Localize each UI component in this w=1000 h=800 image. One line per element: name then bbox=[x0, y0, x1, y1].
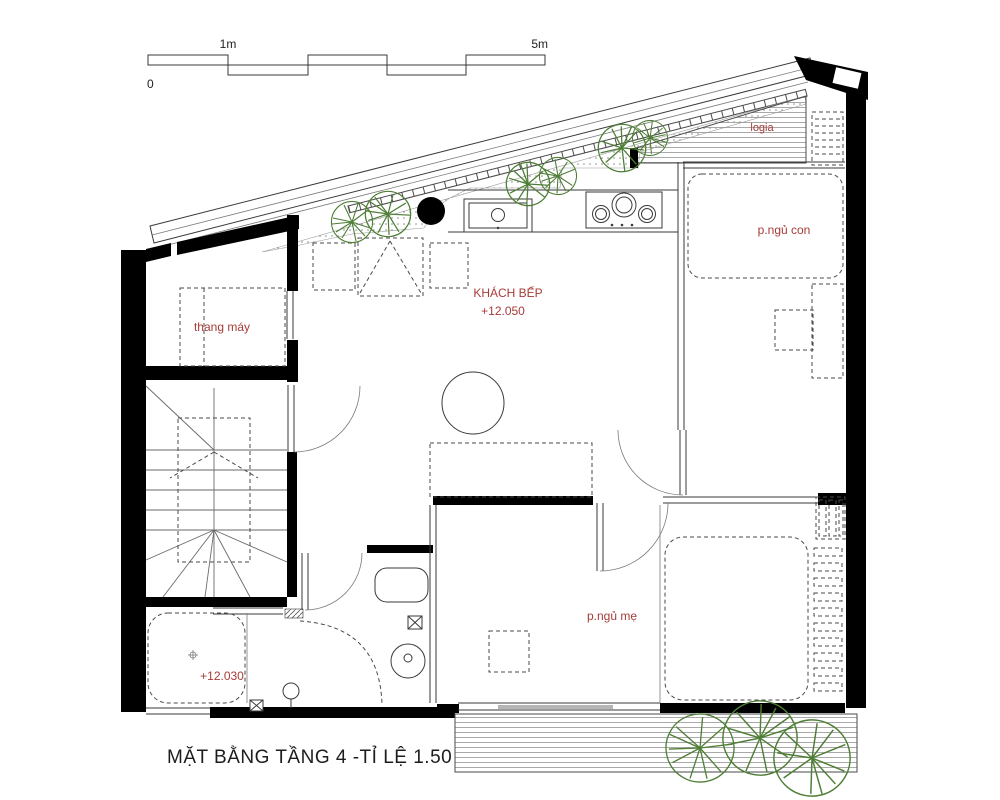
floor-drain-bath bbox=[408, 616, 422, 629]
child-bedroom bbox=[688, 174, 843, 378]
door-bathroom bbox=[302, 553, 362, 610]
shower-room bbox=[148, 613, 247, 703]
floor-plan-canvas: 0 1m 5m bbox=[0, 0, 1000, 800]
living-kitchen-level: +12.050 bbox=[481, 304, 525, 318]
child-bedroom-label: p.ngủ con bbox=[758, 223, 811, 237]
structural-column bbox=[417, 197, 445, 225]
condenser-unit bbox=[812, 112, 843, 165]
floor-plan-drawing: 0 1m 5m bbox=[0, 0, 1000, 800]
shower-drain-symbol bbox=[188, 650, 198, 660]
round-table bbox=[442, 372, 504, 434]
shower-tray bbox=[148, 613, 245, 703]
elevator-label: thang máy bbox=[194, 320, 250, 334]
scale-bar: 0 1m 5m bbox=[147, 37, 548, 91]
chair bbox=[775, 310, 813, 350]
seat-cushion-left bbox=[313, 243, 355, 290]
floor-drain-shower bbox=[250, 700, 263, 711]
bathroom-level: +12.030 bbox=[200, 669, 244, 683]
sofa bbox=[430, 443, 592, 497]
scale-1m-label: 1m bbox=[220, 37, 237, 51]
seat-cushion-right bbox=[430, 243, 468, 288]
living-furniture bbox=[313, 238, 592, 497]
logia-label: logia bbox=[750, 122, 774, 134]
bathroom bbox=[250, 568, 428, 711]
desk bbox=[812, 284, 843, 378]
mother-bedroom-label: p.ngủ mẹ bbox=[587, 609, 637, 623]
door-stairs-living bbox=[288, 385, 360, 452]
wardrobe bbox=[814, 548, 842, 691]
doors bbox=[287, 291, 686, 610]
wet-zone-boundary bbox=[300, 621, 382, 705]
scale-5m-label: 5m bbox=[531, 37, 548, 51]
drawing-title: MẶT BẰNG TẦNG 4 -TỈ LỆ 1.50 bbox=[167, 746, 452, 768]
door-elevator bbox=[287, 291, 293, 339]
folding-table bbox=[358, 238, 423, 296]
partitions bbox=[146, 162, 845, 714]
living-kitchen-label: KHÁCH BẾP bbox=[473, 285, 542, 300]
bed-mother bbox=[665, 537, 808, 700]
door-child-bedroom bbox=[618, 430, 686, 495]
door-mother-bedroom bbox=[597, 503, 668, 571]
kitchen-sink bbox=[464, 199, 532, 232]
kitchen-stove bbox=[586, 192, 662, 228]
nightstand bbox=[489, 631, 529, 672]
toilet bbox=[375, 568, 428, 602]
stairs bbox=[146, 386, 287, 597]
mother-bedroom bbox=[489, 537, 808, 700]
scale-zero-label: 0 bbox=[147, 77, 154, 91]
wash-basin bbox=[391, 644, 425, 678]
tap-symbol bbox=[283, 683, 299, 708]
